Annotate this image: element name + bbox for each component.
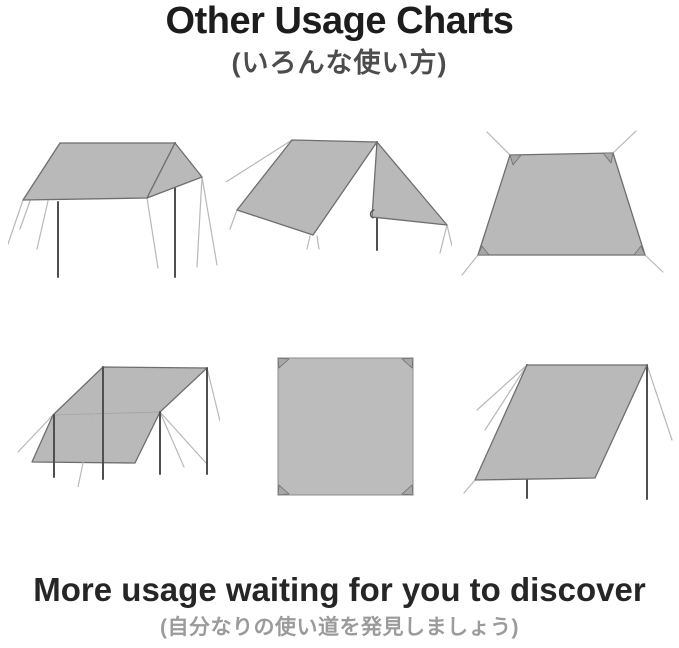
stake-line (317, 236, 319, 249)
guy-line (447, 225, 452, 246)
windbreak-illustration (452, 352, 678, 502)
guy-line (230, 210, 237, 229)
page-title: Other Usage Charts (0, 0, 679, 42)
guy-line (160, 412, 184, 467)
ground-tarp-illustration (455, 125, 677, 277)
guy-line (487, 132, 510, 155)
guy-line (613, 131, 636, 153)
guy-line (147, 198, 158, 268)
guy-line (207, 368, 220, 421)
guy-line (647, 365, 672, 440)
footer-title: More usage waiting for you to discover (0, 571, 679, 609)
a-frame-illustration (226, 132, 452, 254)
guy-line (440, 225, 447, 253)
diagram-square-tarp (266, 348, 416, 498)
square-tarp-illustration (266, 348, 416, 498)
infographic-page: Other Usage Charts (いろんな使い方) (0, 0, 679, 648)
diagram-slant-shelter (16, 355, 220, 487)
guy-line (645, 255, 663, 272)
diagram-ground-tarp (455, 125, 677, 277)
tarp-shape (478, 153, 645, 255)
guy-line (462, 255, 478, 275)
guy-line (8, 200, 23, 244)
diagram-a-frame (226, 132, 452, 254)
diagram-flat-canopy (8, 128, 220, 280)
guy-line (160, 412, 206, 463)
tarp-shape (278, 358, 413, 495)
tarp-left-panel (237, 140, 377, 235)
slant-shelter-illustration (16, 355, 220, 487)
stake-line (307, 236, 310, 249)
diagram-windbreak (452, 352, 678, 502)
guy-line (202, 177, 217, 265)
guy-line (197, 177, 202, 267)
flat-canopy-illustration (8, 128, 220, 280)
footer-subtitle-japanese: (自分なりの使い道を発見しましょう) (0, 614, 679, 642)
guy-line (464, 480, 475, 493)
tarp-right-panel (372, 142, 447, 225)
tarp-shape (475, 365, 647, 480)
guy-line (37, 201, 48, 249)
page-subtitle-japanese: (いろんな使い方) (0, 46, 679, 80)
